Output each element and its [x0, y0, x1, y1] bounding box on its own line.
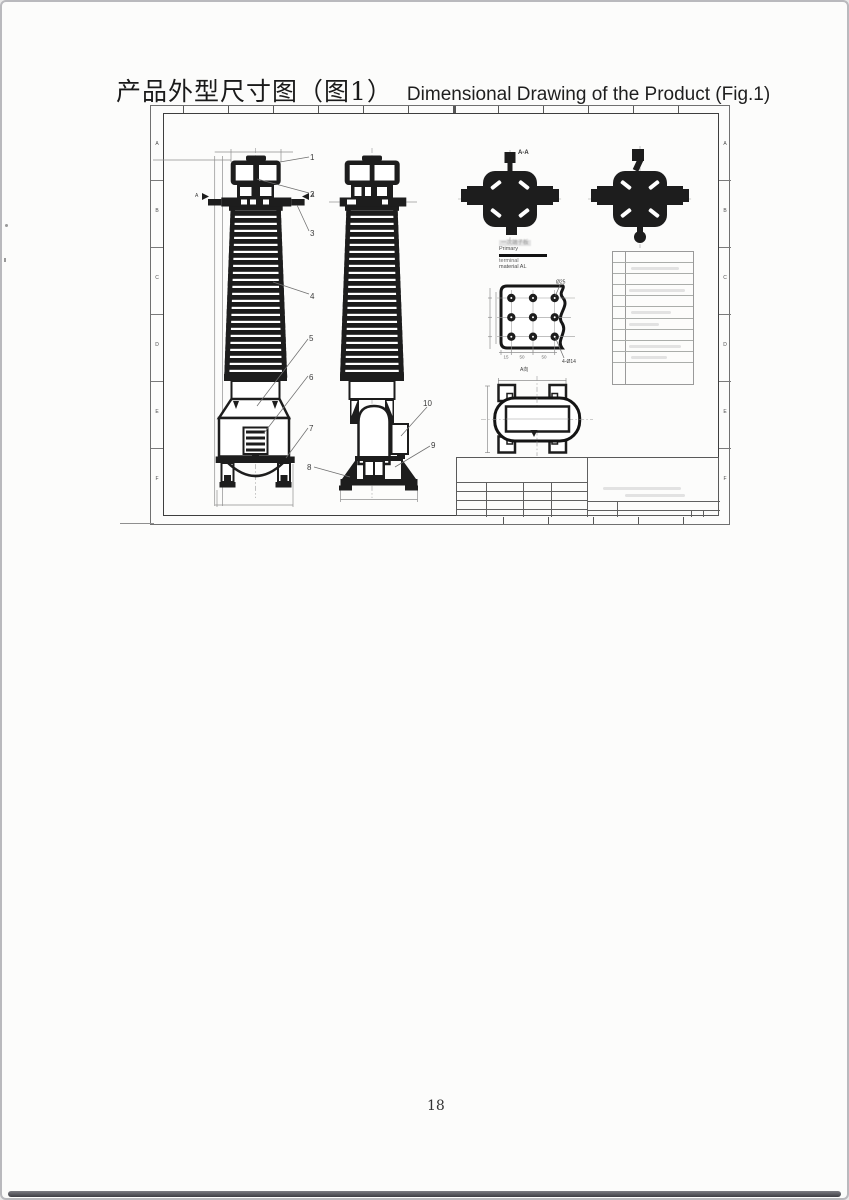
table-row: [613, 352, 693, 363]
title-block-line: [617, 501, 618, 517]
table-row: [613, 363, 693, 374]
callout-2: 2: [310, 190, 315, 199]
title-english: Dimensional Drawing of the Product (Fig.…: [407, 84, 770, 106]
section-view-aa-left: A-A: [458, 150, 562, 246]
callout-4: 4: [310, 292, 315, 301]
title-block-line: [457, 482, 587, 483]
callout-6: 6: [309, 373, 314, 382]
page-title: 产品外型尺寸图（图1） Dimensional Drawing of the P…: [116, 72, 770, 108]
title-block-line: [587, 501, 720, 502]
note-line-3: material AL: [499, 264, 555, 270]
callout-3: 3: [310, 229, 315, 238]
view-a-label: A向: [520, 366, 528, 373]
callout-8: 8: [307, 463, 312, 472]
table-row: [613, 307, 693, 318]
illegible-text: [625, 494, 685, 497]
title-block-line: [457, 509, 587, 510]
section-arrow-label-left: A: [195, 193, 199, 199]
primary-terminal-note: 一次端子板 Primary terminal material AL: [499, 240, 555, 270]
callout-7: 7: [309, 424, 314, 433]
table-row: [613, 263, 693, 274]
illegible-text: [603, 487, 681, 490]
section-arrow-right: [302, 193, 309, 200]
table-row: [613, 330, 693, 341]
title-block-line: [457, 500, 587, 501]
scan-line-artifact: [120, 523, 154, 524]
scan-edge-bottom: [8, 1191, 841, 1197]
plate-dim-50a: 50: [519, 355, 525, 360]
title-block-line: [691, 510, 692, 517]
note-line-chinese: 一次端子板: [499, 240, 531, 246]
title-block-line: [551, 482, 552, 517]
title-chinese: 产品外型尺寸图（图1）: [116, 72, 393, 108]
table-row: [613, 252, 693, 263]
table-row: [613, 341, 693, 352]
table-row: [613, 296, 693, 307]
hole-diameter-label: Ø25: [556, 280, 566, 286]
scan-speck: [5, 224, 8, 227]
plate-dim-15: 15: [503, 355, 509, 360]
note-line-1: Primary: [499, 246, 555, 252]
plate-dim-50b: 50: [541, 355, 547, 360]
corner-hole-label: 4-Ø14: [562, 359, 576, 365]
parts-list-table: [612, 251, 694, 385]
tank-dome: [359, 406, 390, 464]
title-block-line: [457, 491, 587, 492]
table-row: [613, 319, 693, 330]
section-arrow-left: [202, 193, 209, 200]
base-bottom-view: [481, 376, 593, 456]
title-block: [456, 457, 719, 516]
terminal-plate-view: 15 50 50 Ø25 4-Ø14 A向: [488, 280, 576, 374]
front-elevation-view: A A: [153, 148, 315, 507]
scan-speck: [4, 258, 6, 262]
title-block-line: [587, 510, 720, 511]
side-elevation-view: [329, 148, 418, 502]
page-number: 18: [427, 1098, 445, 1114]
note-heavy-bar: [499, 254, 547, 257]
drawing-sheet: A B C D E F A B C D E F: [150, 105, 730, 525]
title-block-line: [486, 482, 487, 517]
callout-10: 10: [423, 399, 432, 408]
table-row: [613, 274, 693, 285]
scanned-document-page: 产品外型尺寸图（图1） Dimensional Drawing of the P…: [0, 0, 849, 1200]
callout-1: 1: [310, 153, 315, 162]
title-block-line: [523, 482, 524, 517]
callout-9: 9: [431, 441, 436, 450]
callout-5: 5: [309, 334, 314, 343]
title-block-line: [587, 458, 588, 517]
secondary-terminal-box: [392, 424, 409, 454]
title-block-line: [703, 510, 704, 517]
section-view-aa-right: [588, 146, 692, 248]
table-row: [613, 285, 693, 296]
section-label: A-A: [518, 150, 529, 156]
